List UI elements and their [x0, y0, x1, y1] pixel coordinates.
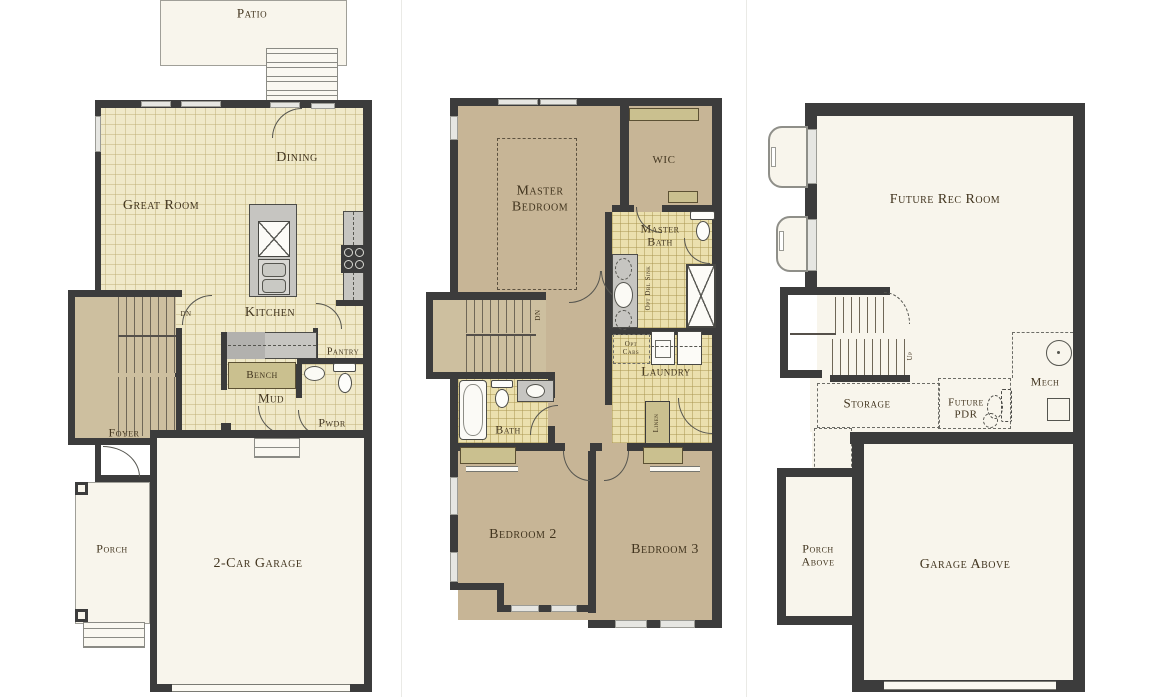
closet-shelf	[460, 447, 516, 464]
stair-treads	[466, 300, 536, 333]
window	[660, 620, 695, 628]
window-well-slot	[771, 147, 776, 167]
wall	[1073, 116, 1085, 446]
furnace-icon	[1047, 398, 1070, 421]
kitchen-label: Kitchen	[245, 305, 295, 321]
opt-dbl-sink-label: Opt Dbl Sink	[645, 266, 653, 311]
window	[615, 620, 647, 628]
stair-treads	[835, 297, 888, 333]
panel-divider	[401, 0, 402, 697]
sink-icon	[526, 384, 545, 398]
stair-treads	[466, 336, 536, 372]
sink-icon	[304, 366, 325, 381]
panel-divider	[746, 0, 747, 697]
wall	[150, 430, 372, 438]
great-room-label: Great Room	[123, 198, 199, 214]
opt-cabs-label: Opt Cabs	[623, 341, 639, 357]
mech-outline	[1012, 332, 1013, 378]
wall	[777, 468, 786, 625]
washer-icon	[655, 340, 671, 358]
window	[498, 99, 538, 105]
laundry-label: Laundry	[641, 365, 690, 380]
wall	[612, 205, 634, 212]
sink-basin-icon	[262, 279, 286, 293]
wall	[780, 287, 788, 378]
stair-landing-line	[790, 333, 836, 335]
wall	[777, 468, 852, 477]
garage-above-label: Garage Above	[920, 557, 1011, 573]
wall	[850, 432, 1085, 444]
wall	[620, 106, 629, 205]
wall	[588, 620, 722, 628]
linen-label: Linen	[653, 414, 661, 433]
toilet-icon	[333, 363, 356, 372]
door-arc	[103, 446, 140, 477]
mech-label: Mech	[1031, 375, 1060, 388]
future-sink-icon	[983, 413, 998, 428]
burner-icon	[344, 260, 353, 269]
wall	[296, 364, 302, 398]
porch-above-label: Porch Above	[802, 543, 835, 570]
dryer-icon	[677, 331, 702, 365]
bathtub-icon	[459, 380, 487, 440]
wic-label: WIC	[653, 154, 676, 166]
window	[141, 101, 171, 107]
wall	[450, 98, 722, 106]
toilet-icon	[491, 380, 513, 388]
sink-icon	[614, 282, 633, 308]
garage-entry-steps	[254, 438, 300, 458]
wall	[364, 430, 372, 692]
floor-plan-sheet: Patio DN	[0, 0, 1161, 697]
garage-door	[172, 684, 350, 692]
wall	[428, 292, 546, 300]
stair-treads	[118, 297, 176, 335]
window	[450, 116, 458, 140]
bath-label: Bath	[495, 423, 521, 436]
master-bath-label: Master Bath	[640, 223, 679, 250]
porch-post	[75, 482, 88, 495]
wall	[175, 328, 182, 445]
porch-steps	[83, 622, 145, 648]
window-well-slot	[779, 231, 784, 251]
porch-label: Porch	[96, 542, 127, 555]
opt-sink-icon	[615, 310, 632, 330]
water-heater-icon	[1046, 340, 1072, 366]
garage-label: 2-Car Garage	[214, 556, 303, 572]
mud-label: Mud	[258, 392, 284, 407]
window	[511, 605, 539, 612]
window	[181, 101, 221, 107]
closet-shelf	[629, 108, 699, 121]
up-label: Up	[907, 352, 915, 361]
wall	[712, 98, 722, 628]
window	[311, 103, 335, 109]
closet-door	[466, 466, 518, 472]
stair-treads	[832, 339, 906, 375]
future-pdr-label: Future PDR	[948, 397, 984, 422]
window	[450, 552, 458, 582]
wall	[336, 300, 372, 306]
opt-sink-icon	[615, 258, 632, 280]
porch-post	[75, 609, 88, 622]
wall	[426, 292, 433, 378]
wall	[780, 370, 822, 378]
wall	[590, 443, 602, 451]
dishwasher-icon	[258, 221, 290, 257]
bench-label: Bench	[246, 369, 278, 381]
pwdr-label: Pwdr	[318, 416, 345, 429]
dining-label: Dining	[276, 150, 317, 166]
window	[95, 116, 101, 152]
toilet-icon	[690, 211, 715, 220]
wall	[426, 372, 555, 379]
future-rec-room-label: Future Rec Room	[890, 192, 1000, 208]
stair-treads	[118, 337, 176, 373]
storage-label: Storage	[843, 397, 890, 412]
shower-icon	[686, 264, 716, 328]
wall	[68, 290, 75, 445]
burner-icon	[355, 248, 364, 257]
bedroom3-label: Bedroom 3	[631, 542, 699, 558]
toilet-icon	[338, 373, 352, 393]
closet-shelf	[643, 447, 683, 464]
dn-label: DN	[180, 311, 191, 319]
burner-icon	[344, 248, 353, 257]
window	[450, 477, 458, 515]
wall	[150, 430, 157, 692]
bedroom2-label: Bedroom 2	[489, 527, 557, 543]
wall	[805, 103, 1085, 116]
mech-outline	[1012, 332, 1073, 333]
window	[551, 605, 577, 612]
toilet-icon	[495, 389, 509, 408]
window	[540, 99, 577, 105]
upper-cabinet-line	[228, 345, 316, 346]
wall	[780, 287, 890, 295]
wall	[68, 290, 182, 297]
garage-door	[884, 681, 1056, 690]
master-bedroom-label: Master Bedroom	[512, 183, 568, 214]
foyer-label: Foyer	[109, 426, 140, 439]
patio-label: Patio	[237, 7, 267, 22]
wall	[605, 335, 612, 405]
burner-icon	[355, 260, 364, 269]
window	[270, 102, 300, 108]
wall	[450, 583, 504, 590]
appliance-dash-line	[651, 346, 702, 347]
dn-label: DN	[535, 309, 543, 320]
wall	[830, 375, 910, 382]
sink-basin-icon	[262, 263, 286, 277]
wall	[1073, 446, 1085, 692]
patio-steps	[266, 48, 338, 102]
closet-door	[650, 466, 700, 472]
closet-shelf	[668, 191, 698, 203]
wall	[221, 332, 227, 390]
pantry-label: Pantry	[327, 346, 359, 357]
wall	[777, 616, 852, 625]
wall	[852, 444, 864, 692]
wall	[605, 212, 612, 328]
